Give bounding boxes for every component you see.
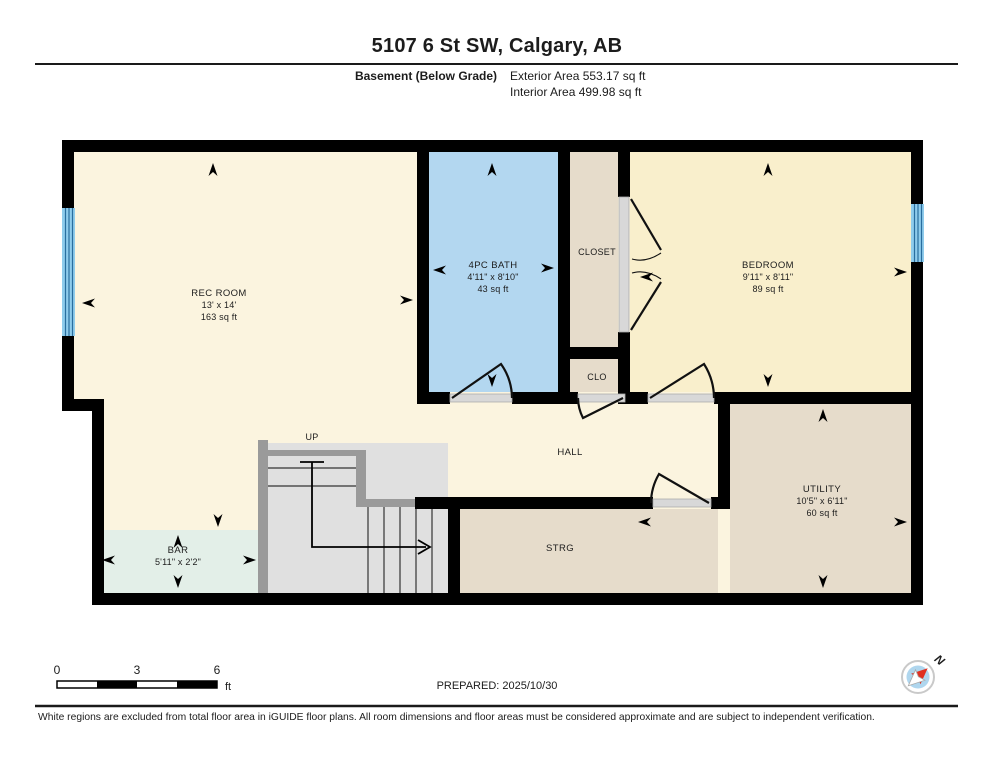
scale-bar-seg-1: [97, 681, 137, 688]
exterior-area: Exterior Area 553.17 sq ft: [510, 69, 646, 83]
floor-label: Basement (Below Grade): [355, 69, 497, 83]
bar-dims: 5'11" x 2'2": [155, 557, 201, 567]
footer-disclaimer: White regions are excluded from total fl…: [38, 712, 875, 723]
wall-hall-utility-divider: [718, 392, 730, 509]
utility-area: 60 sq ft: [806, 508, 837, 518]
clo-name: CLO: [587, 372, 606, 382]
compass-north-label: N: [932, 652, 948, 669]
wall-strg-left: [448, 497, 460, 605]
header: 5107 6 St SW, Calgary, AB Basement (Belo…: [35, 35, 958, 99]
bar-name: BAR: [168, 545, 189, 556]
footer: White regions are excluded from total fl…: [35, 706, 958, 723]
stair-wall-mid-horizontal: [356, 499, 420, 507]
interior-area: Interior Area 499.98 sq ft: [510, 85, 642, 99]
utility-name: UTILITY: [803, 484, 841, 495]
wall-top: [62, 140, 923, 152]
rec-room-name: REC ROOM: [191, 288, 246, 299]
window-bedroom: [911, 204, 924, 262]
scale-tick-3: 3: [134, 663, 141, 677]
wall-bath-right: [558, 152, 570, 404]
compass-icon: N: [902, 652, 948, 693]
utility-dims: 10'5" x 6'11": [796, 496, 847, 506]
hall-name: HALL: [557, 447, 582, 458]
wall-hall-top-d: [714, 392, 923, 404]
room-strg-fill: [460, 509, 718, 593]
wall-left-lower: [92, 399, 104, 605]
wall-closet-clo-divider: [558, 347, 630, 359]
bath-name: 4PC BATH: [469, 260, 518, 271]
scale-unit: ft: [225, 681, 231, 693]
page-title: 5107 6 St SW, Calgary, AB: [372, 35, 623, 57]
closet-name: CLOSET: [578, 247, 616, 257]
prepared-date: PREPARED: 2025/10/30: [437, 680, 558, 692]
scale-bar-seg-2: [177, 681, 217, 688]
wall-left-upper: [62, 140, 74, 208]
wall-right-lower: [911, 262, 923, 605]
stair-wall-mid-vertical: [356, 450, 366, 505]
wall-hall-top-c: [625, 392, 648, 404]
stair-wall-top: [258, 450, 366, 456]
wall-right-upper: [911, 140, 923, 204]
wall-hall-strg-b: [711, 497, 730, 509]
wall-closet-right-upper: [618, 152, 630, 197]
strg-name: STRG: [546, 543, 574, 554]
sill-bedroom-door: [648, 394, 714, 402]
sill-closet-bifold: [619, 197, 629, 332]
wall-hall-top-a: [417, 392, 450, 404]
scale-tick-0: 0: [54, 663, 61, 677]
bath-area: 43 sq ft: [477, 284, 508, 294]
bedroom-dims: 9'11" x 8'11": [743, 272, 794, 282]
stairs-fill: [258, 443, 448, 593]
scale-bar: 0 3 6 ft: [54, 663, 231, 693]
scale-tick-6: 6: [214, 663, 221, 677]
bedroom-area: 89 sq ft: [752, 284, 783, 294]
wall-hall-top-b: [512, 392, 578, 404]
stairs-up-label: UP: [305, 432, 318, 442]
excluded-region: [60, 411, 92, 605]
rec-room-area: 163 sq ft: [201, 312, 238, 322]
floor-plan-page: 5107 6 St SW, Calgary, AB Basement (Belo…: [0, 0, 993, 768]
bedroom-name: BEDROOM: [742, 260, 794, 271]
window-rec-room: [62, 208, 75, 336]
sill-bath-door: [450, 394, 512, 402]
bath-dims: 4'11" x 8'10": [467, 272, 518, 282]
stair-wall-left: [258, 440, 268, 593]
wall-bath-left: [417, 152, 429, 404]
rec-room-dims: 13' x 14': [202, 300, 237, 310]
wall-bottom: [92, 593, 923, 605]
